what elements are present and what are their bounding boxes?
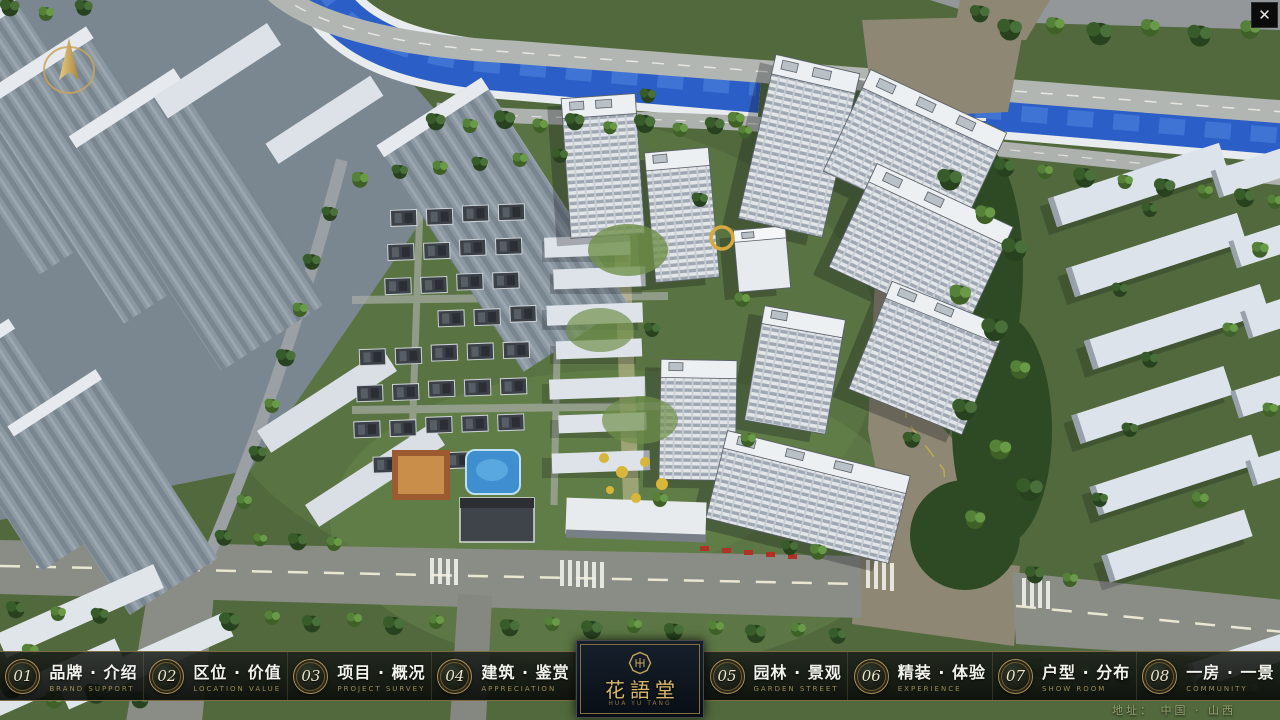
logo-subtitle: HUA YU TANG <box>608 701 671 707</box>
menu-item-subtitle: APPRECIATION <box>481 685 556 693</box>
menu-item-subtitle: GARDEN STREET <box>754 685 839 693</box>
menu-number-badge: 05 <box>710 659 745 694</box>
menu-item-subtitle: COMMUNITY <box>1186 685 1247 693</box>
menu-number-badge: 03 <box>293 659 328 694</box>
menu-item-decor-experience[interactable]: 06 精装 · 体验 EXPERIENCE <box>848 652 992 700</box>
menu-item-label: 建筑 · 鉴赏 <box>481 659 569 683</box>
clubhouse <box>392 450 450 500</box>
menu-item-subtitle: EXPERIENCE <box>898 685 962 693</box>
project-logo[interactable]: 花語堂 HUA YU TANG <box>576 640 704 718</box>
menu-number-badge: 01 <box>5 659 40 694</box>
logo-title: 花語堂 <box>600 680 680 700</box>
seal-icon <box>628 651 652 679</box>
menu-item-label: 一房 · 一景 <box>1186 659 1274 683</box>
menu-item-subtitle: SHOW ROOM <box>1042 685 1106 693</box>
menu-group-right: 05 园林 · 景观 GARDEN STREET 06 精装 · 体验 EXPE… <box>704 652 1280 700</box>
menu-item-label: 园林 · 景观 <box>754 659 842 683</box>
aerial-render-viewport[interactable]: ✕ <box>0 0 1280 720</box>
menu-number-badge: 08 <box>1142 659 1177 694</box>
menu-item-project-survey[interactable]: 03 项目 · 概况 PROJECT SURVEY <box>288 652 432 700</box>
aerial-map-render <box>0 0 1280 720</box>
menu-item-garden-landscape[interactable]: 05 园林 · 景观 GARDEN STREET <box>704 652 848 700</box>
menu-number-badge: 06 <box>854 659 889 694</box>
menu-item-brand-intro[interactable]: 01 品牌 · 介绍 BRAND SUPPORT <box>0 652 144 700</box>
menu-item-subtitle: BRAND SUPPORT <box>49 685 134 693</box>
close-button[interactable]: ✕ <box>1251 2 1278 28</box>
menu-item-architecture-appreciation[interactable]: 04 建筑 · 鉴赏 APPRECIATION <box>432 652 576 700</box>
menu-item-label: 区位 · 价值 <box>193 659 281 683</box>
menu-item-label: 精装 · 体验 <box>898 659 986 683</box>
menu-item-label: 项目 · 概况 <box>337 659 425 683</box>
address-text: 地址： 中国 · 山西 <box>1112 702 1236 718</box>
menu-group-left: 01 品牌 · 介绍 BRAND SUPPORT 02 区位 · 价值 LOCA… <box>0 652 576 700</box>
menu-item-label: 品牌 · 介绍 <box>49 659 137 683</box>
amenity-pool <box>466 450 520 494</box>
menu-number-badge: 07 <box>998 659 1033 694</box>
presentation-screen: ✕ 01 品牌 · 介绍 BRAND SUPPORT 02 区位 · 价值 LO… <box>0 0 1280 720</box>
menu-item-subtitle: LOCATION VALUE <box>193 685 281 693</box>
menu-item-label: 户型 · 分布 <box>1042 659 1130 683</box>
menu-item-location-value[interactable]: 02 区位 · 价值 LOCATION VALUE <box>144 652 288 700</box>
menu-number-badge: 02 <box>149 659 184 694</box>
menu-item-floorplan-distribution[interactable]: 07 户型 · 分布 SHOW ROOM <box>993 652 1137 700</box>
menu-number-badge: 04 <box>437 659 472 694</box>
menu-item-one-room-one-view[interactable]: 08 一房 · 一景 COMMUNITY <box>1137 652 1280 700</box>
close-icon: ✕ <box>1258 8 1271 23</box>
menu-item-subtitle: PROJECT SURVEY <box>337 685 425 693</box>
